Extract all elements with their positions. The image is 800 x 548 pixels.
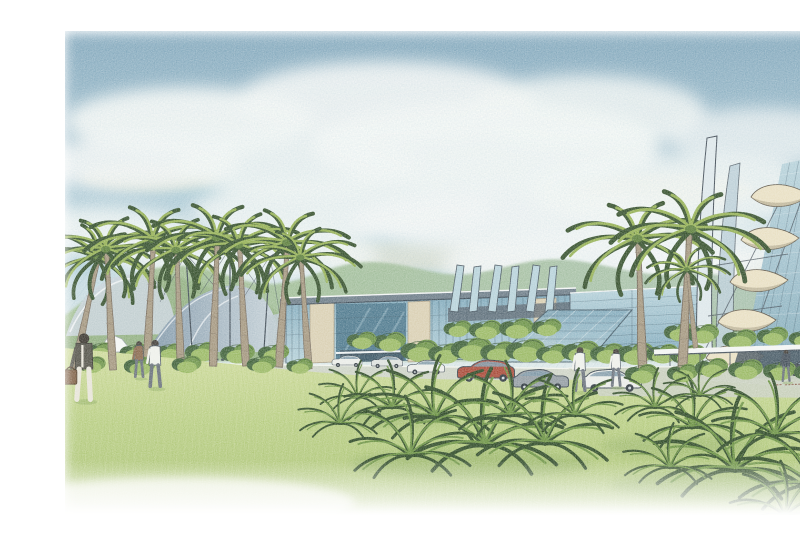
architectural-rendering: [40, 16, 800, 532]
rendering-canvas: [40, 16, 800, 532]
painting: [40, 30, 800, 532]
paper-grain: [64, 30, 800, 516]
bottom-fade: [64, 460, 800, 516]
